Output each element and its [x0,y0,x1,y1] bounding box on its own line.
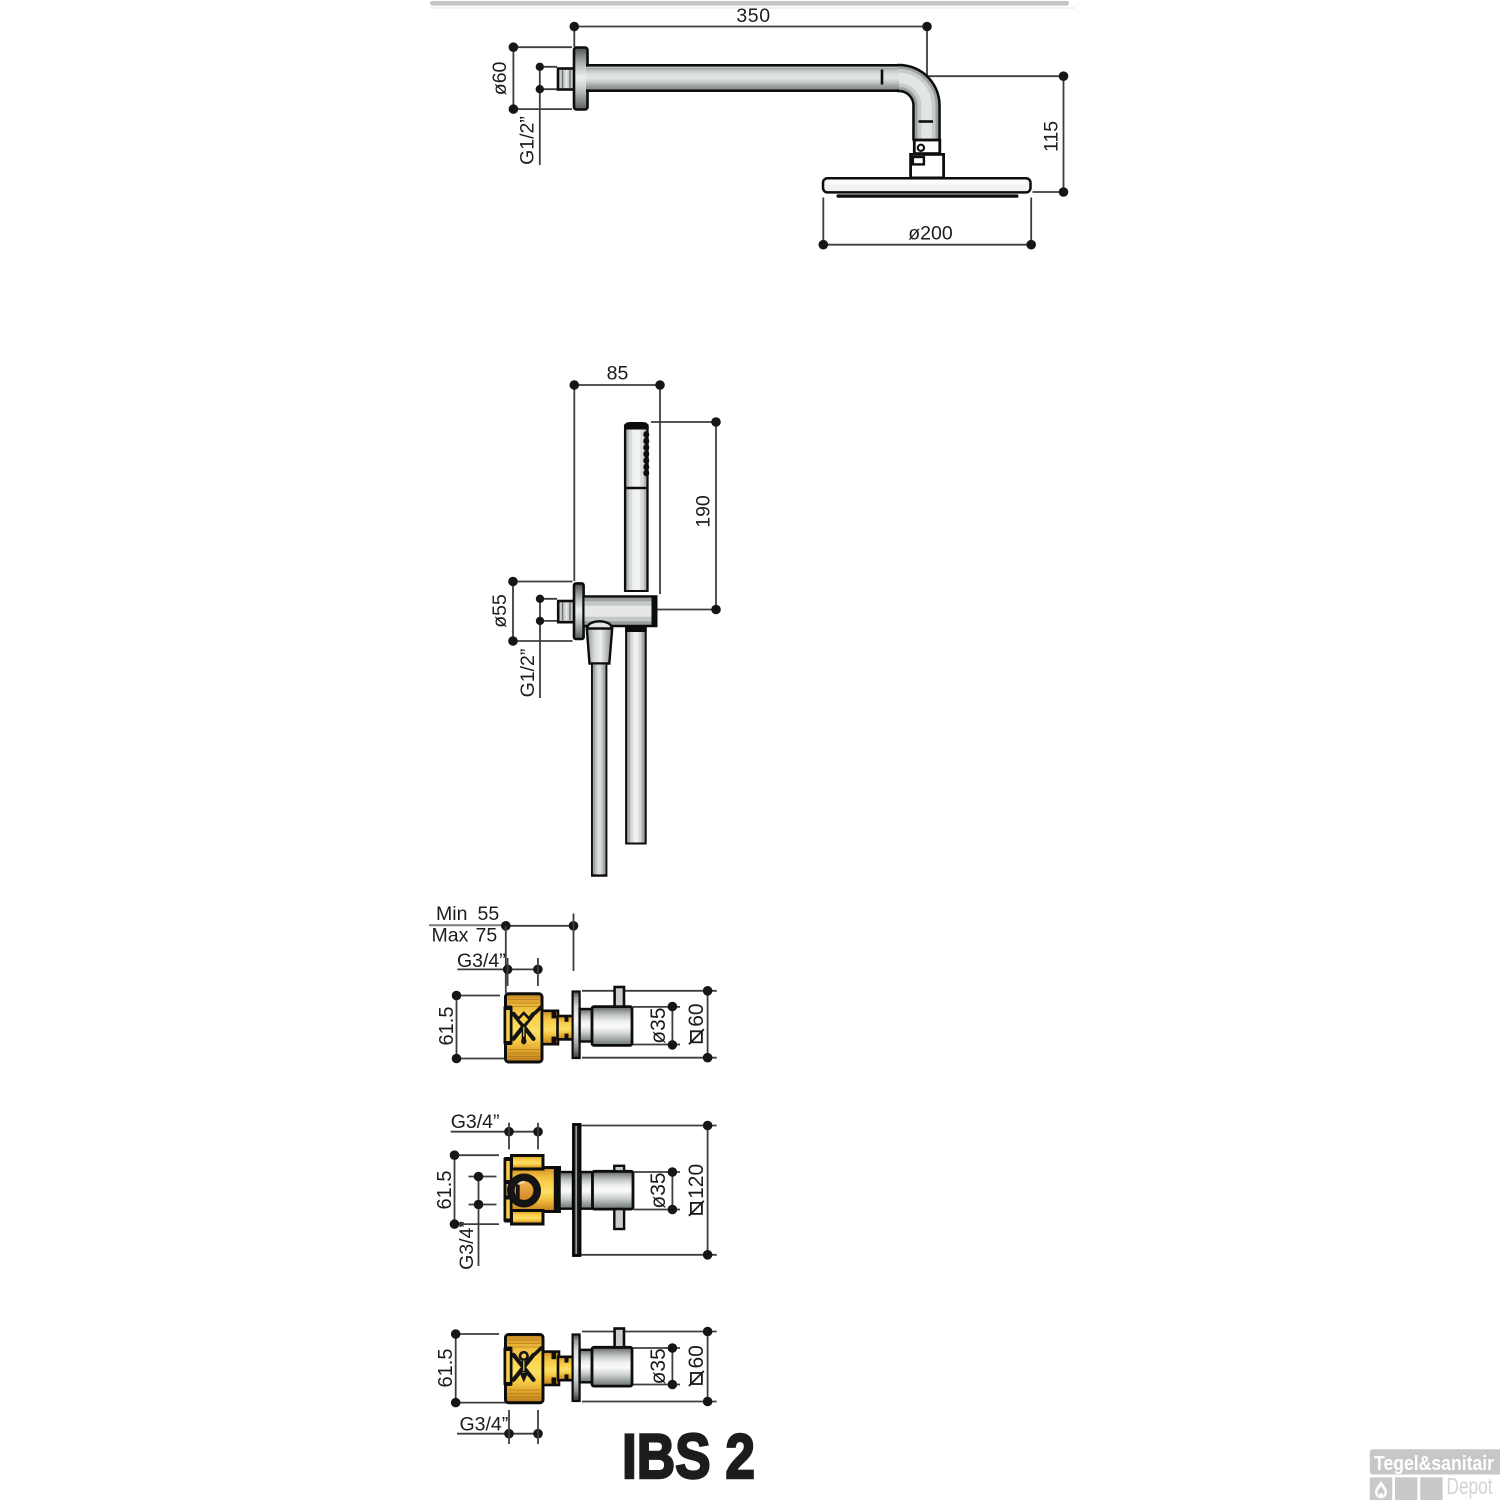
svg-text:Min: Min [436,903,467,925]
svg-text:75: 75 [476,925,498,947]
svg-text:60: 60 [685,1345,708,1368]
svg-text:Depot: Depot [1447,1473,1493,1499]
svg-text:115: 115 [1041,121,1063,152]
svg-text:120: 120 [685,1164,708,1199]
svg-text:61.5: 61.5 [436,1007,458,1046]
svg-text:ø200: ø200 [908,223,953,245]
svg-text:ø35: ø35 [647,1348,670,1384]
svg-text:G1/2”: G1/2” [517,649,539,698]
svg-text:85: 85 [607,363,629,385]
svg-text:ø35: ø35 [647,1172,670,1208]
svg-text:ø55: ø55 [489,594,511,628]
svg-text:Max: Max [432,925,469,947]
svg-text:190: 190 [693,495,715,528]
svg-text:60: 60 [685,1003,708,1026]
svg-text:IBS 2: IBS 2 [622,1422,755,1492]
svg-text:61.5: 61.5 [434,1171,456,1210]
svg-text:55: 55 [478,903,500,925]
svg-text:ø60: ø60 [489,61,511,95]
svg-text:Tegel&sanitair: Tegel&sanitair [1374,1453,1494,1475]
svg-text:G3/4”: G3/4” [460,1414,509,1436]
svg-text:61.5: 61.5 [435,1349,457,1388]
svg-text:350: 350 [736,5,770,27]
svg-text:ø35: ø35 [647,1008,670,1044]
svg-text:G3/4”: G3/4” [451,1111,500,1133]
svg-text:G3/4”: G3/4” [456,1221,478,1270]
svg-text:G1/2”: G1/2” [517,116,539,165]
